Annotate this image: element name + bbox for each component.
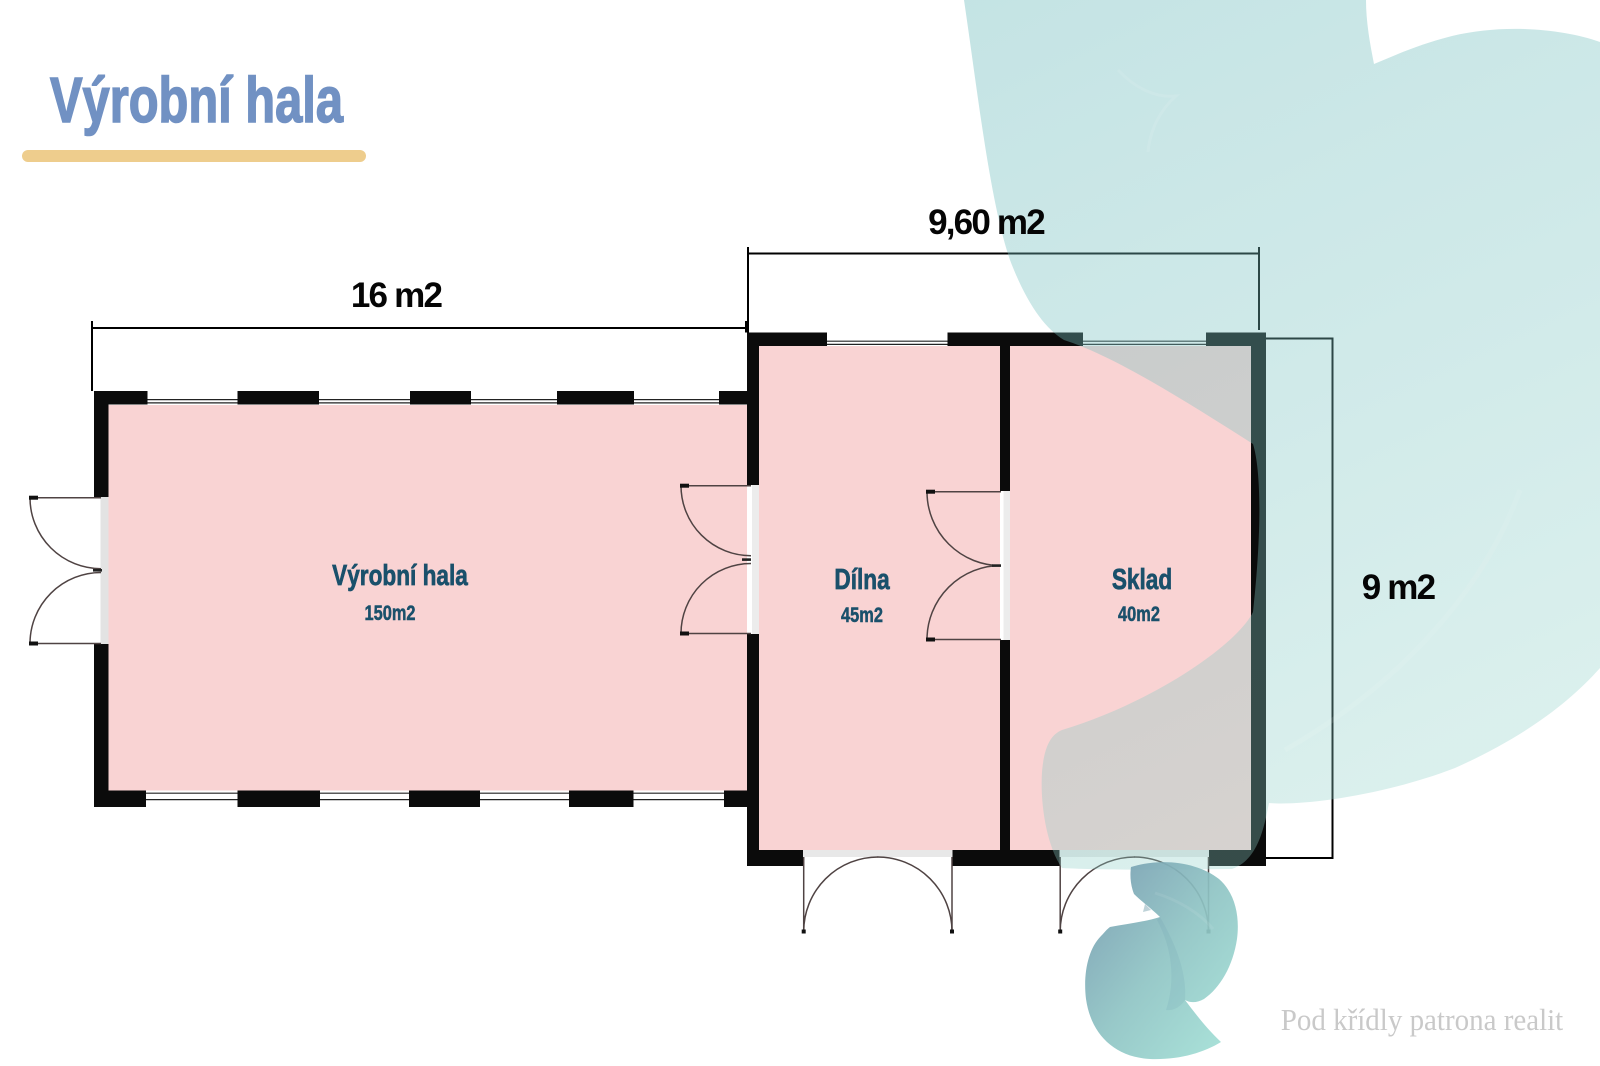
- svg-text:Výrobní hala: Výrobní hala: [50, 65, 344, 137]
- svg-text:9,60 m2: 9,60 m2: [928, 203, 1045, 242]
- svg-text:Výrobní hala: Výrobní hala: [332, 558, 468, 591]
- svg-text:150m2: 150m2: [364, 601, 415, 624]
- svg-text:Sklad: Sklad: [1112, 562, 1172, 595]
- svg-text:16 m2: 16 m2: [351, 276, 443, 315]
- svg-text:45m2: 45m2: [841, 603, 883, 626]
- svg-text:Dílna: Dílna: [834, 562, 890, 595]
- svg-text:40m2: 40m2: [1118, 602, 1160, 625]
- svg-text:9 m2: 9 m2: [1362, 568, 1436, 607]
- svg-text:Pod křídly patrona realit: Pod křídly patrona realit: [1281, 1003, 1564, 1037]
